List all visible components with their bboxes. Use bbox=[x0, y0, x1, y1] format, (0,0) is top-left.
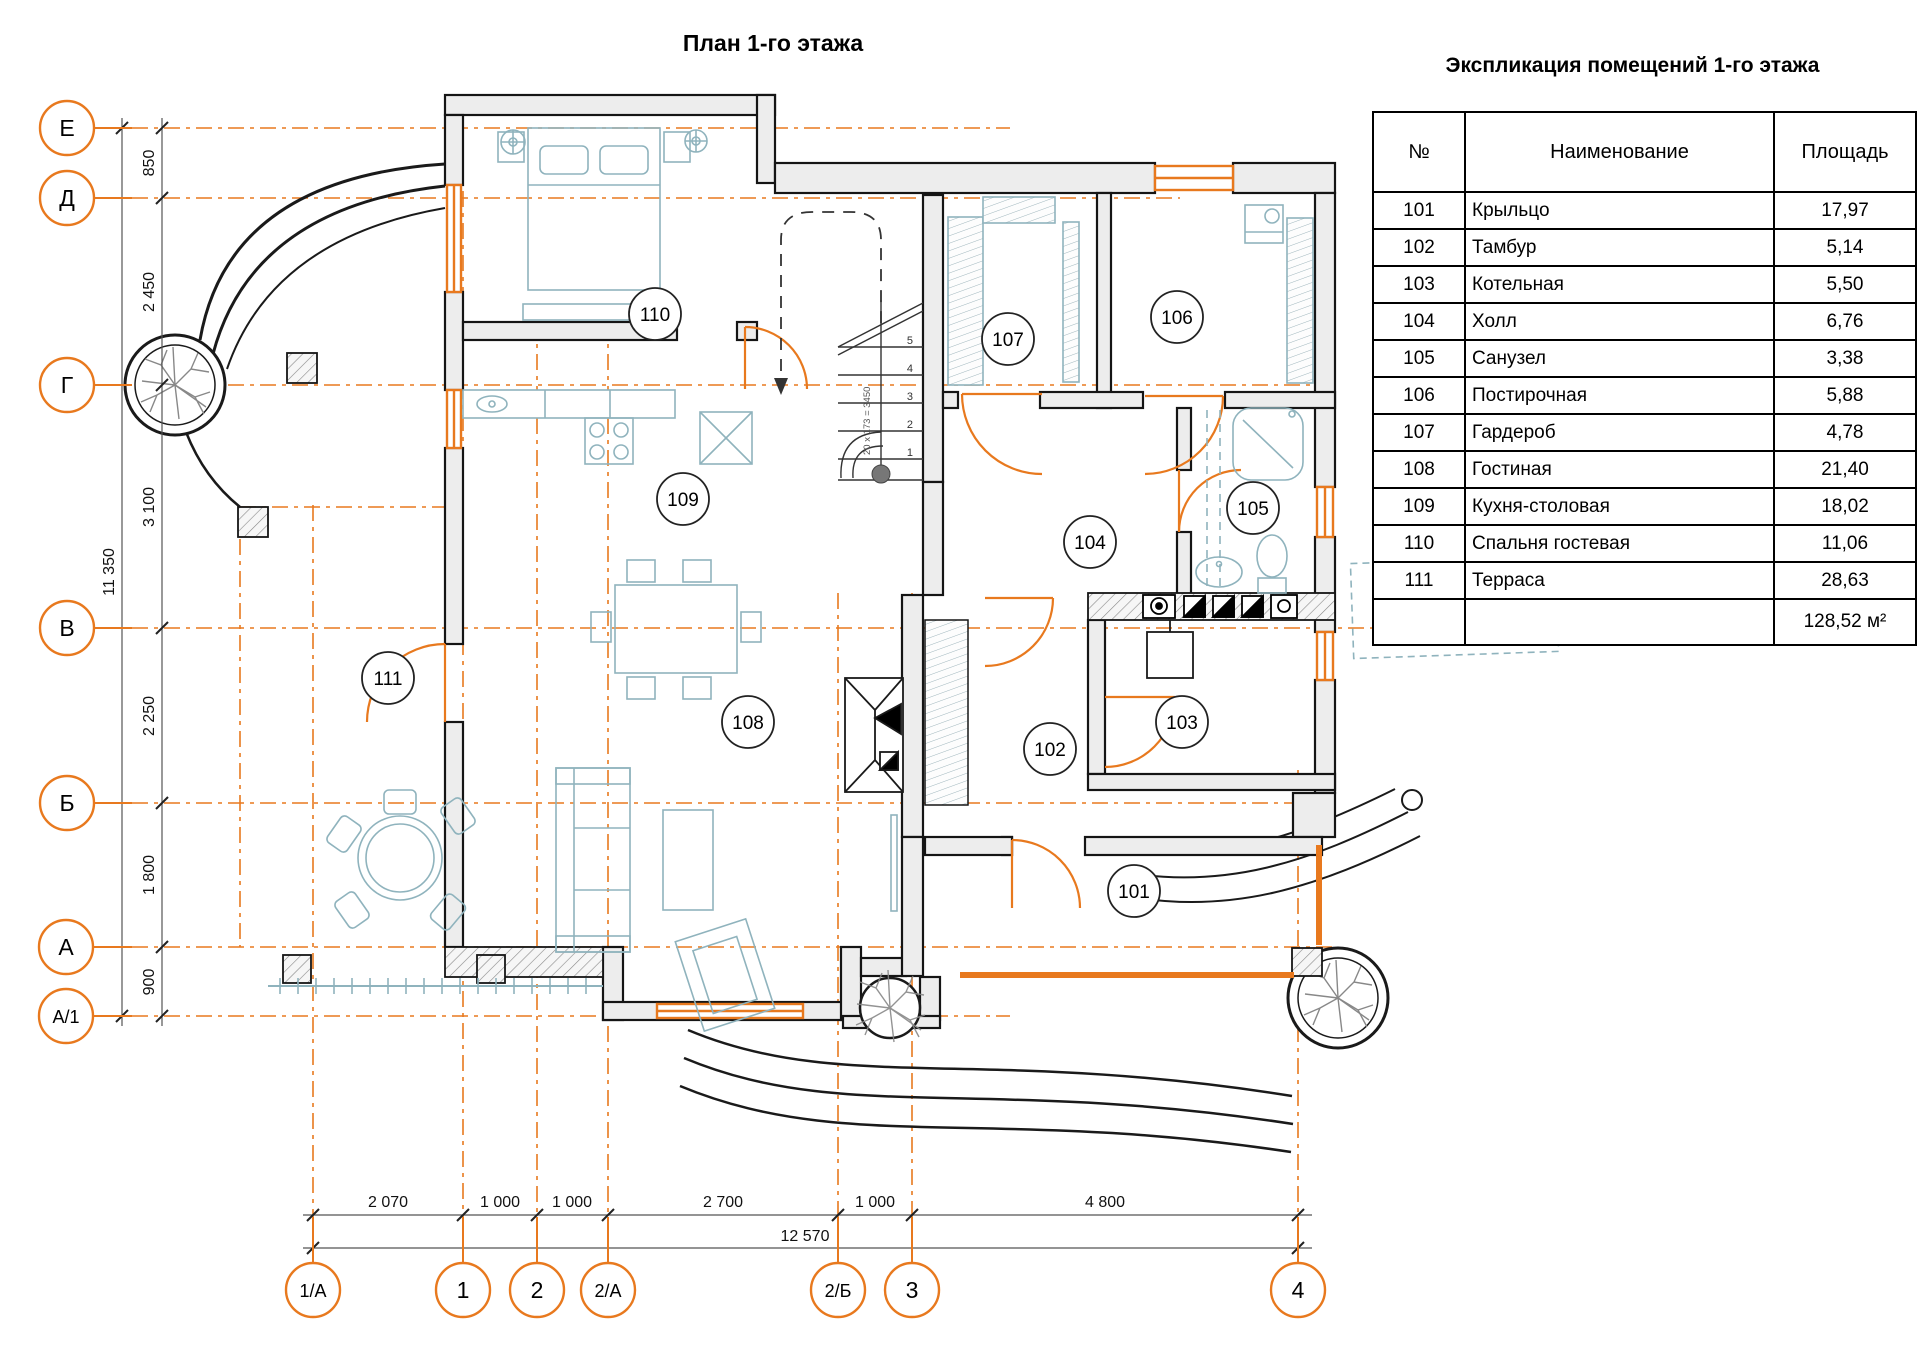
cell-area: 5,14 bbox=[1774, 229, 1916, 266]
axis-bubble-B: Б bbox=[40, 776, 94, 830]
room-label-109: 109 bbox=[657, 473, 709, 525]
cell-num: 103 bbox=[1373, 266, 1465, 303]
wardrobe-rail-top bbox=[983, 197, 1055, 223]
cell-num: 109 bbox=[1373, 488, 1465, 525]
room-schedule-table: № Наименование Площадь 101 Крыльцо 17,97… bbox=[1372, 111, 1917, 646]
fireplace bbox=[845, 678, 903, 792]
door-entrance bbox=[1012, 840, 1080, 908]
garden-steps bbox=[680, 1030, 1293, 1152]
cell-num: 106 bbox=[1373, 377, 1465, 414]
window-right-1 bbox=[1317, 487, 1333, 537]
shower bbox=[1233, 408, 1303, 480]
door-wardrobe-107 bbox=[962, 394, 1042, 474]
dim-bottom-0: 2 070 bbox=[368, 1194, 408, 1211]
col-header-num: № bbox=[1373, 112, 1465, 192]
axis-bubble-1: 1 bbox=[436, 1263, 490, 1317]
axis-bubble-4: 4 bbox=[1271, 1263, 1325, 1317]
svg-text:106: 106 bbox=[1161, 308, 1193, 329]
cell-area: 17,97 bbox=[1774, 192, 1916, 229]
plumbing-lines bbox=[1207, 410, 1220, 592]
stair-note: 20 х 173 = 3450 bbox=[862, 387, 873, 455]
axis-bubble-3: 3 bbox=[885, 1263, 939, 1317]
cell-name: Гостиная bbox=[1465, 451, 1774, 488]
svg-text:3: 3 bbox=[906, 1277, 919, 1303]
door-hall-102 bbox=[985, 598, 1053, 666]
cell-name: Холл bbox=[1465, 303, 1774, 340]
svg-text:107: 107 bbox=[992, 330, 1024, 351]
wardrobe-rail-left bbox=[948, 217, 983, 385]
dim-left-2: 3 100 bbox=[141, 487, 158, 527]
porch-floor-edge bbox=[960, 972, 1294, 978]
table-row: 102 Тамбур 5,14 bbox=[1373, 229, 1916, 266]
porch-right-edge bbox=[1316, 845, 1322, 945]
cell-name: Котельная bbox=[1465, 266, 1774, 303]
table-total-row: 128,52 м² bbox=[1373, 599, 1916, 645]
cell-name: Гардероб bbox=[1465, 414, 1774, 451]
bay-planter bbox=[856, 970, 925, 1042]
axis-bubble-2A: 2/А bbox=[581, 1263, 635, 1317]
cell-area: 28,63 bbox=[1774, 562, 1916, 599]
kitchen-counter bbox=[463, 390, 675, 464]
table-row: 109 Кухня-столовая 18,02 bbox=[1373, 488, 1916, 525]
svg-text:А: А bbox=[58, 934, 74, 960]
cell-area: 5,50 bbox=[1774, 266, 1916, 303]
step-number: 5 bbox=[907, 335, 913, 347]
step-number: 4 bbox=[907, 363, 913, 375]
cell-name: Спальня гостевая bbox=[1465, 525, 1774, 562]
col-header-area: Площадь bbox=[1774, 112, 1916, 192]
axis-bubble-E: Е bbox=[40, 101, 94, 155]
table-row: 108 Гостиная 21,40 bbox=[1373, 451, 1916, 488]
cell-num: 107 bbox=[1373, 414, 1465, 451]
coffee-table bbox=[663, 810, 713, 910]
cell-name-empty bbox=[1465, 599, 1774, 645]
axis-bubble-1A: 1/А bbox=[286, 1263, 340, 1317]
window-bedroom-left bbox=[447, 185, 461, 292]
svg-text:108: 108 bbox=[732, 713, 764, 734]
window-top-right bbox=[1155, 166, 1233, 190]
room-label-103: 103 bbox=[1156, 696, 1208, 748]
staircase: 5 4 3 2 1 20 х 173 = 3450 bbox=[774, 212, 923, 483]
ceiling-fan-icon-2 bbox=[685, 130, 707, 152]
svg-text:109: 109 bbox=[667, 490, 699, 511]
axis-bubble-2B: 2/Б bbox=[811, 1263, 865, 1317]
dim-left-4: 1 800 bbox=[141, 855, 158, 895]
axis-bubble-G: Г bbox=[40, 358, 94, 412]
svg-text:1/А: 1/А bbox=[299, 1281, 326, 1301]
washing-machine bbox=[1245, 205, 1283, 243]
room-label-102: 102 bbox=[1024, 723, 1076, 775]
wardrobe-rail-right bbox=[1063, 222, 1079, 382]
sofa bbox=[556, 768, 630, 952]
cell-area: 6,76 bbox=[1774, 303, 1916, 340]
step-number: 1 bbox=[907, 447, 913, 459]
cell-num: 108 bbox=[1373, 451, 1465, 488]
svg-text:111: 111 bbox=[374, 669, 403, 690]
cell-num: 104 bbox=[1373, 303, 1465, 340]
table-row: 106 Постирочная 5,88 bbox=[1373, 377, 1916, 414]
svg-text:В: В bbox=[59, 615, 74, 641]
room-label-105: 105 bbox=[1227, 482, 1279, 534]
stair-direction-arrow bbox=[781, 212, 881, 392]
kitchen-island bbox=[700, 412, 752, 464]
room-label-108: 108 bbox=[722, 696, 774, 748]
window-bay bbox=[657, 1004, 803, 1018]
axis-bubble-2: 2 bbox=[510, 1263, 564, 1317]
svg-text:103: 103 bbox=[1166, 713, 1198, 734]
svg-text:Д: Д bbox=[59, 185, 75, 211]
dim-left-0: 850 bbox=[141, 150, 158, 177]
table-header-row: № Наименование Площадь bbox=[1373, 112, 1916, 192]
floor-plan-sheet: План 1-го этажа Экспликация помещений 1-… bbox=[0, 0, 1920, 1364]
dim-bottom-2: 1 000 bbox=[552, 1194, 592, 1211]
left-tower bbox=[125, 335, 225, 435]
dim-bottom-1: 1 000 bbox=[480, 1194, 520, 1211]
cell-name: Тамбур bbox=[1465, 229, 1774, 266]
cell-area: 3,38 bbox=[1774, 340, 1916, 377]
room-label-107: 107 bbox=[982, 313, 1034, 365]
col-header-name: Наименование bbox=[1465, 112, 1774, 192]
cell-area: 11,06 bbox=[1774, 525, 1916, 562]
dim-left-total: 11 350 bbox=[101, 548, 118, 596]
svg-text:105: 105 bbox=[1237, 499, 1269, 520]
dim-bottom-3: 2 700 bbox=[703, 1194, 743, 1211]
room-label-106: 106 bbox=[1151, 291, 1203, 343]
axis-bubble-A1: А/1 bbox=[39, 989, 93, 1043]
room-label-104: 104 bbox=[1064, 516, 1116, 568]
cell-name: Постирочная bbox=[1465, 377, 1774, 414]
dim-bottom-4: 1 000 bbox=[855, 1194, 895, 1211]
dimension-ticks bbox=[116, 122, 1304, 1254]
table-row: 105 Санузел 3,38 bbox=[1373, 340, 1916, 377]
cell-area: 5,88 bbox=[1774, 377, 1916, 414]
cell-area: 21,40 bbox=[1774, 451, 1916, 488]
washbasin bbox=[1196, 557, 1242, 587]
table-row: 104 Холл 6,76 bbox=[1373, 303, 1916, 340]
cell-num: 101 bbox=[1373, 192, 1465, 229]
svg-text:Г: Г bbox=[61, 372, 74, 398]
svg-text:1: 1 bbox=[457, 1277, 470, 1303]
svg-text:Е: Е bbox=[59, 115, 74, 141]
laundry-rail bbox=[1287, 218, 1313, 383]
dim-left-1: 2 450 bbox=[141, 272, 158, 312]
terrace-railing bbox=[268, 978, 603, 994]
bed bbox=[498, 128, 690, 290]
svg-text:102: 102 bbox=[1034, 740, 1066, 761]
cell-area: 4,78 bbox=[1774, 414, 1916, 451]
svg-text:101: 101 bbox=[1118, 882, 1150, 903]
axis-bubble-D: Д bbox=[40, 171, 94, 225]
axis-bubble-A: А bbox=[39, 920, 93, 974]
cell-num: 110 bbox=[1373, 525, 1465, 562]
dim-left-5: 900 bbox=[141, 969, 158, 996]
cell-num: 102 bbox=[1373, 229, 1465, 266]
cell-name: Кухня-столовая bbox=[1465, 488, 1774, 525]
cell-num: 111 bbox=[1373, 562, 1465, 599]
cell-name: Крыльцо bbox=[1465, 192, 1774, 229]
dining-table bbox=[591, 560, 761, 699]
svg-text:4: 4 bbox=[1292, 1277, 1305, 1303]
cell-name: Санузел bbox=[1465, 340, 1774, 377]
cell-num: 105 bbox=[1373, 340, 1465, 377]
svg-text:Б: Б bbox=[59, 790, 74, 816]
toilet bbox=[1257, 535, 1287, 593]
table-row: 110 Спальня гостевая 11,06 bbox=[1373, 525, 1916, 562]
svg-text:110: 110 bbox=[640, 305, 670, 326]
dim-bottom-total: 12 570 bbox=[781, 1228, 830, 1245]
window-right-2 bbox=[1317, 632, 1333, 680]
table-row: 101 Крыльцо 17,97 bbox=[1373, 192, 1916, 229]
table-row: 111 Терраса 28,63 bbox=[1373, 562, 1916, 599]
room-label-110: 110 bbox=[629, 288, 681, 340]
step-number: 3 bbox=[907, 391, 913, 403]
table-row: 103 Котельная 5,50 bbox=[1373, 266, 1916, 303]
tv bbox=[891, 815, 897, 911]
cell-num-empty bbox=[1373, 599, 1465, 645]
svg-text:2/Б: 2/Б bbox=[825, 1281, 852, 1301]
cell-total-area: 128,52 м² bbox=[1774, 599, 1916, 645]
room-label-111: 111 bbox=[362, 652, 414, 704]
dim-left-3: 2 250 bbox=[141, 696, 158, 736]
table-row: 107 Гардероб 4,78 bbox=[1373, 414, 1916, 451]
step-number: 2 bbox=[907, 419, 913, 431]
terrace-curved-wall bbox=[186, 164, 445, 507]
axis-bubble-V: В bbox=[40, 601, 94, 655]
room-label-101: 101 bbox=[1108, 865, 1160, 917]
boiler bbox=[1147, 620, 1193, 678]
window-kitchen-left bbox=[447, 390, 461, 448]
cell-name: Терраса bbox=[1465, 562, 1774, 599]
svg-text:2/А: 2/А bbox=[594, 1281, 621, 1301]
svg-text:А/1: А/1 bbox=[52, 1007, 79, 1027]
svg-text:104: 104 bbox=[1074, 533, 1106, 554]
svg-text:2: 2 bbox=[531, 1277, 544, 1303]
ceiling-fan-icon bbox=[501, 130, 525, 154]
appliance-symbols bbox=[1143, 595, 1297, 618]
cell-area: 18,02 bbox=[1774, 488, 1916, 525]
hall-closet bbox=[925, 620, 968, 805]
dimension-lines bbox=[122, 118, 1312, 1248]
dim-bottom-5: 4 800 bbox=[1085, 1194, 1125, 1211]
